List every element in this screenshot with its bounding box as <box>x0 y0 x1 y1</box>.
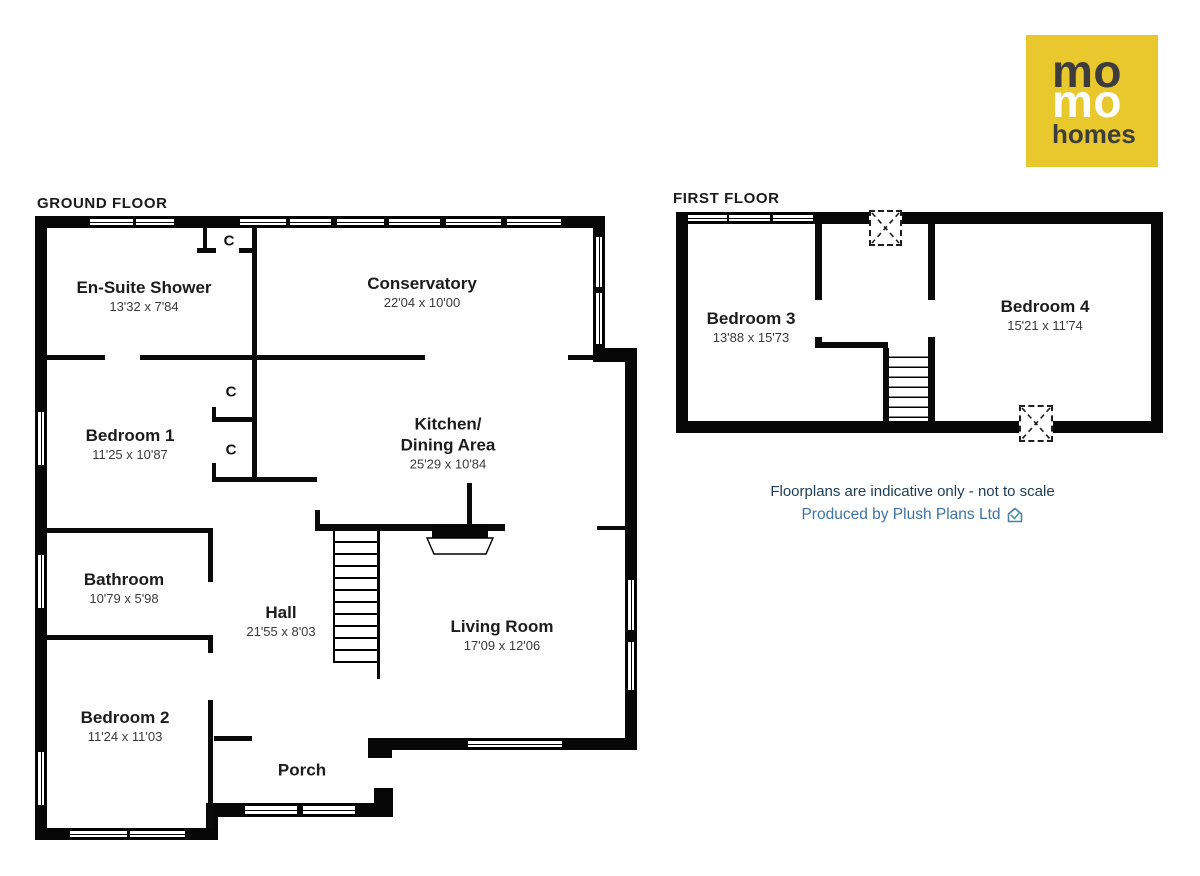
wall <box>1151 212 1163 433</box>
house-check-icon <box>1006 506 1024 524</box>
window <box>729 213 770 223</box>
wall <box>676 212 688 433</box>
skylight-symbol <box>1019 405 1053 442</box>
skylight-symbol <box>869 210 902 246</box>
wall <box>928 224 935 300</box>
floorplan-page: mo mo homes GROUND FLOOR FIRST FLOOR <box>0 0 1200 876</box>
wall <box>1053 421 1163 433</box>
disclaimer-text: Floorplans are indicative only - not to … <box>700 482 1125 502</box>
credit-row: Produced by Plush Plans Ltd <box>700 505 1125 525</box>
wall <box>815 224 822 300</box>
footer: Floorplans are indicative only - not to … <box>700 482 1125 525</box>
room-label-bedroom-3: Bedroom 3 13'88 x 15'73 <box>707 308 796 346</box>
wall <box>928 337 935 421</box>
window <box>773 213 813 223</box>
wall <box>815 342 888 348</box>
credit-link[interactable]: Produced by Plush Plans Ltd <box>801 505 1000 525</box>
staircase <box>889 348 928 421</box>
room-label-bedroom-4: Bedroom 4 15'21 x 11'74 <box>1001 296 1090 334</box>
wall <box>676 421 1020 433</box>
window <box>688 213 727 223</box>
first-floor-plan: Bedroom 3 13'88 x 15'73 Bedroom 4 15'21 … <box>0 0 1200 876</box>
wall <box>902 212 1163 224</box>
